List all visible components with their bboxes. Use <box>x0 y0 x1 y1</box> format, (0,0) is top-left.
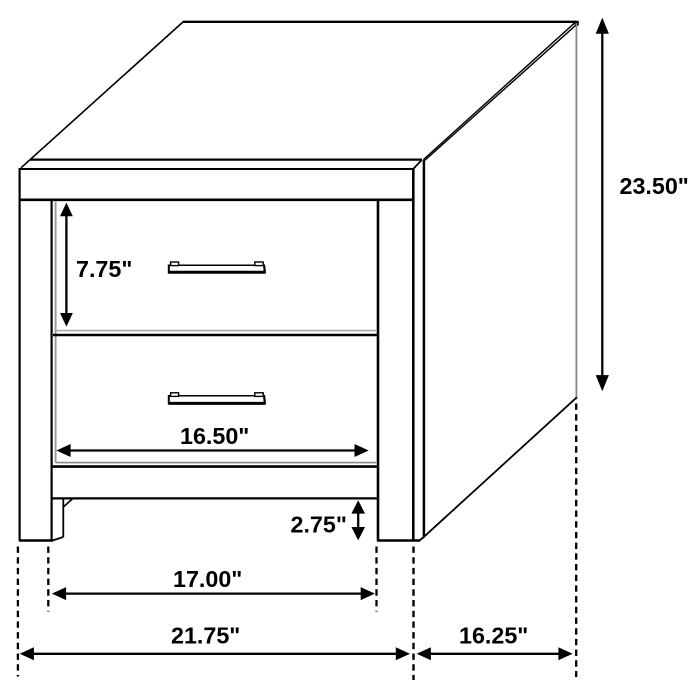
svg-text:2.75": 2.75" <box>291 512 347 538</box>
svg-text:17.00": 17.00" <box>173 566 242 592</box>
svg-text:16.25": 16.25" <box>459 623 528 649</box>
svg-text:7.75": 7.75" <box>76 256 132 282</box>
svg-text:21.75": 21.75" <box>171 623 240 649</box>
svg-text:23.50": 23.50" <box>620 173 689 199</box>
svg-text:16.50": 16.50" <box>180 423 249 449</box>
